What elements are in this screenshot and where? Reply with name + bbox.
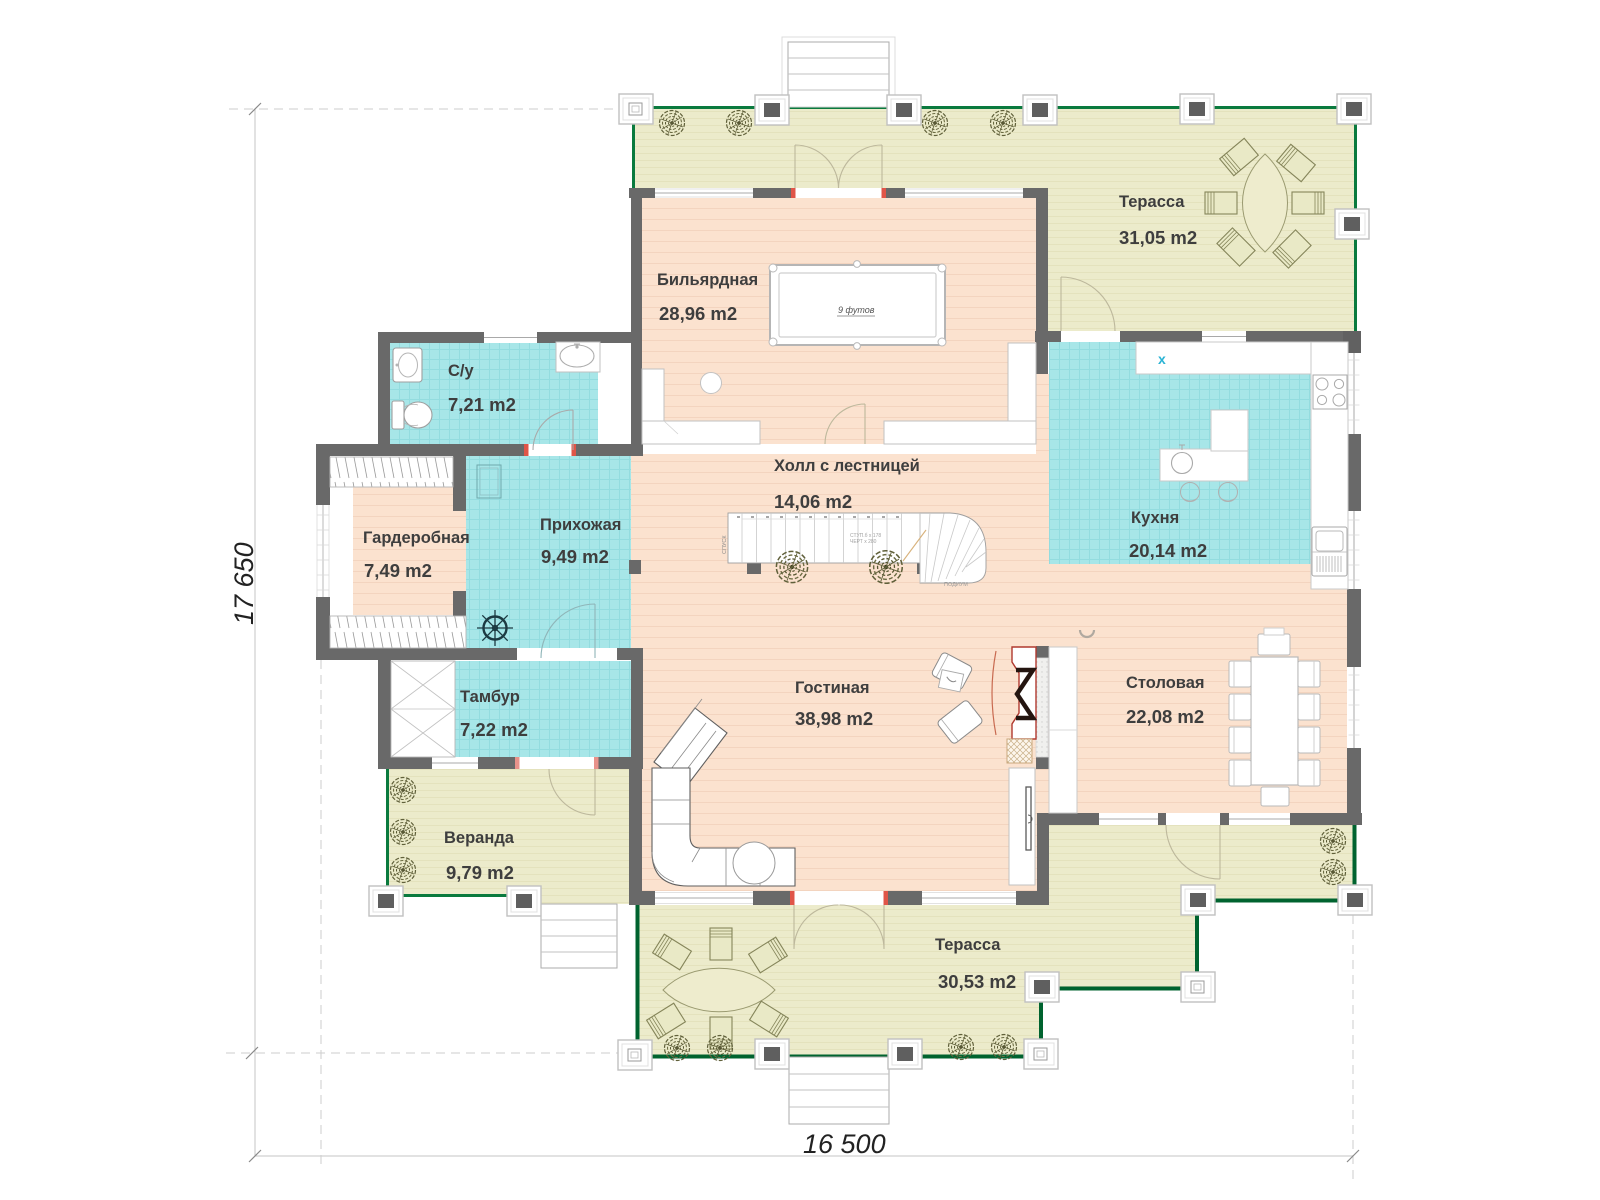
svg-text:Терасса: Терасса — [935, 936, 1001, 954]
svg-text:9,49 m2: 9,49 m2 — [541, 546, 609, 567]
svg-text:x: x — [1158, 351, 1166, 367]
svg-text:Гардеробная: Гардеробная — [363, 529, 470, 547]
svg-text:С/у: С/у — [448, 362, 475, 380]
svg-text:ЧЕРТ х 280: ЧЕРТ х 280 — [850, 539, 877, 545]
svg-text:Терасса: Терасса — [1119, 193, 1185, 211]
svg-text:Гостиная: Гостиная — [795, 679, 870, 697]
svg-text:ПОДИУМ: ПОДИУМ — [944, 582, 968, 588]
svg-text:20,14 m2: 20,14 m2 — [1129, 540, 1207, 561]
svg-text:30,53 m2: 30,53 m2 — [938, 971, 1016, 992]
svg-text:14,06 m2: 14,06 m2 — [774, 491, 852, 512]
svg-text:38,98 m2: 38,98 m2 — [795, 708, 873, 729]
svg-text:7,22 m2: 7,22 m2 — [460, 719, 528, 740]
svg-text:Прихожая: Прихожая — [540, 516, 621, 534]
svg-text:Веранда: Веранда — [444, 829, 515, 847]
svg-text:Холл с лестницей: Холл с лестницей — [774, 457, 920, 475]
svg-text:СПУСК: СПУСК — [722, 535, 728, 554]
svg-text:16 500: 16 500 — [803, 1129, 886, 1159]
svg-text:9 футов: 9 футов — [838, 305, 875, 315]
svg-text:7,49 m2: 7,49 m2 — [364, 560, 432, 581]
svg-text:31,05 m2: 31,05 m2 — [1119, 227, 1197, 248]
svg-text:Тамбур: Тамбур — [460, 688, 520, 706]
svg-text:28,96 m2: 28,96 m2 — [659, 303, 737, 324]
svg-text:9,79 m2: 9,79 m2 — [446, 862, 514, 883]
svg-text:Столовая: Столовая — [1126, 674, 1205, 692]
svg-text:7,21 m2: 7,21 m2 — [448, 394, 516, 415]
svg-text:Кухня: Кухня — [1131, 509, 1179, 527]
svg-text:22,08 m2: 22,08 m2 — [1126, 706, 1204, 727]
svg-text:17 650: 17 650 — [229, 542, 259, 625]
svg-text:Бильярдная: Бильярдная — [657, 271, 758, 289]
